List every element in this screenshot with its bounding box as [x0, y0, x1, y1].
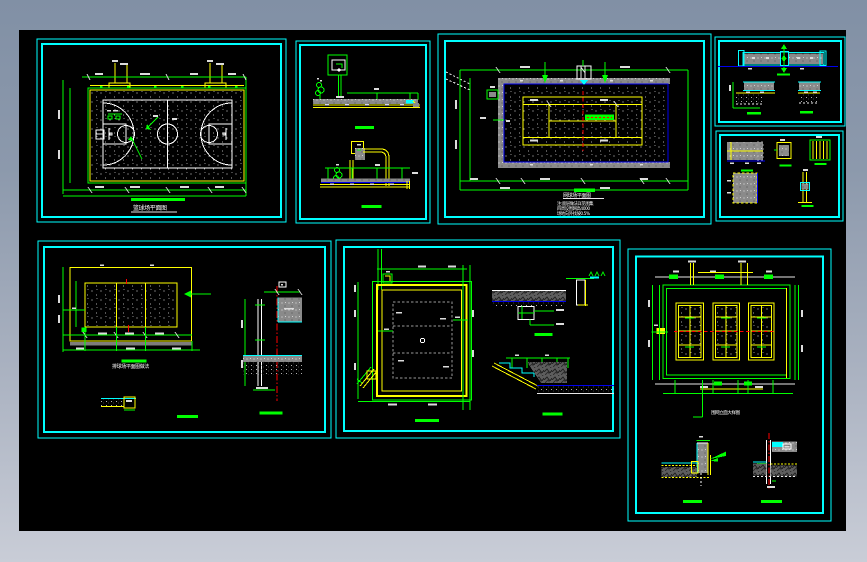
- caption-bar: [777, 74, 790, 76]
- caption-bar: [355, 126, 374, 129]
- caption-bar: [535, 333, 553, 336]
- enclosure-walls: [498, 78, 670, 168]
- fence-caption-text: 围网立面大样图: [711, 409, 741, 416]
- tennis-note-1: 注:面层做法详见图集: [557, 200, 594, 207]
- basketball-caption-text: 篮球场平面图: [133, 204, 167, 212]
- caption-bar: [415, 419, 439, 422]
- caption-bar: [177, 415, 198, 418]
- caption-bar: [780, 165, 792, 167]
- caption-bar: [815, 163, 827, 165]
- caption-bar: [362, 205, 382, 208]
- caption-bar: [741, 170, 753, 172]
- volleyball-caption-text: 排球场平面图做法: [112, 363, 149, 370]
- viewer-window: { "viewer": { "frame_top_color": "#8190a…: [0, 0, 867, 562]
- caption-bar: [543, 413, 563, 416]
- caption-bar: [761, 500, 782, 503]
- tennis-note-2: 四周设围网高4000: [557, 205, 590, 212]
- caption-bar: [800, 111, 813, 114]
- tennis-caption-text: 网球场平面图: [563, 192, 591, 199]
- tennis-note-3: 场地向外找坡0.5%: [557, 210, 590, 217]
- caption-bar: [683, 500, 702, 503]
- cad-sheet: 篮球场平面图: [0, 0, 867, 562]
- court-plan: [88, 86, 246, 184]
- caption-bar: [747, 112, 761, 115]
- caption-bar: [260, 412, 283, 415]
- caption-bar: [802, 205, 814, 207]
